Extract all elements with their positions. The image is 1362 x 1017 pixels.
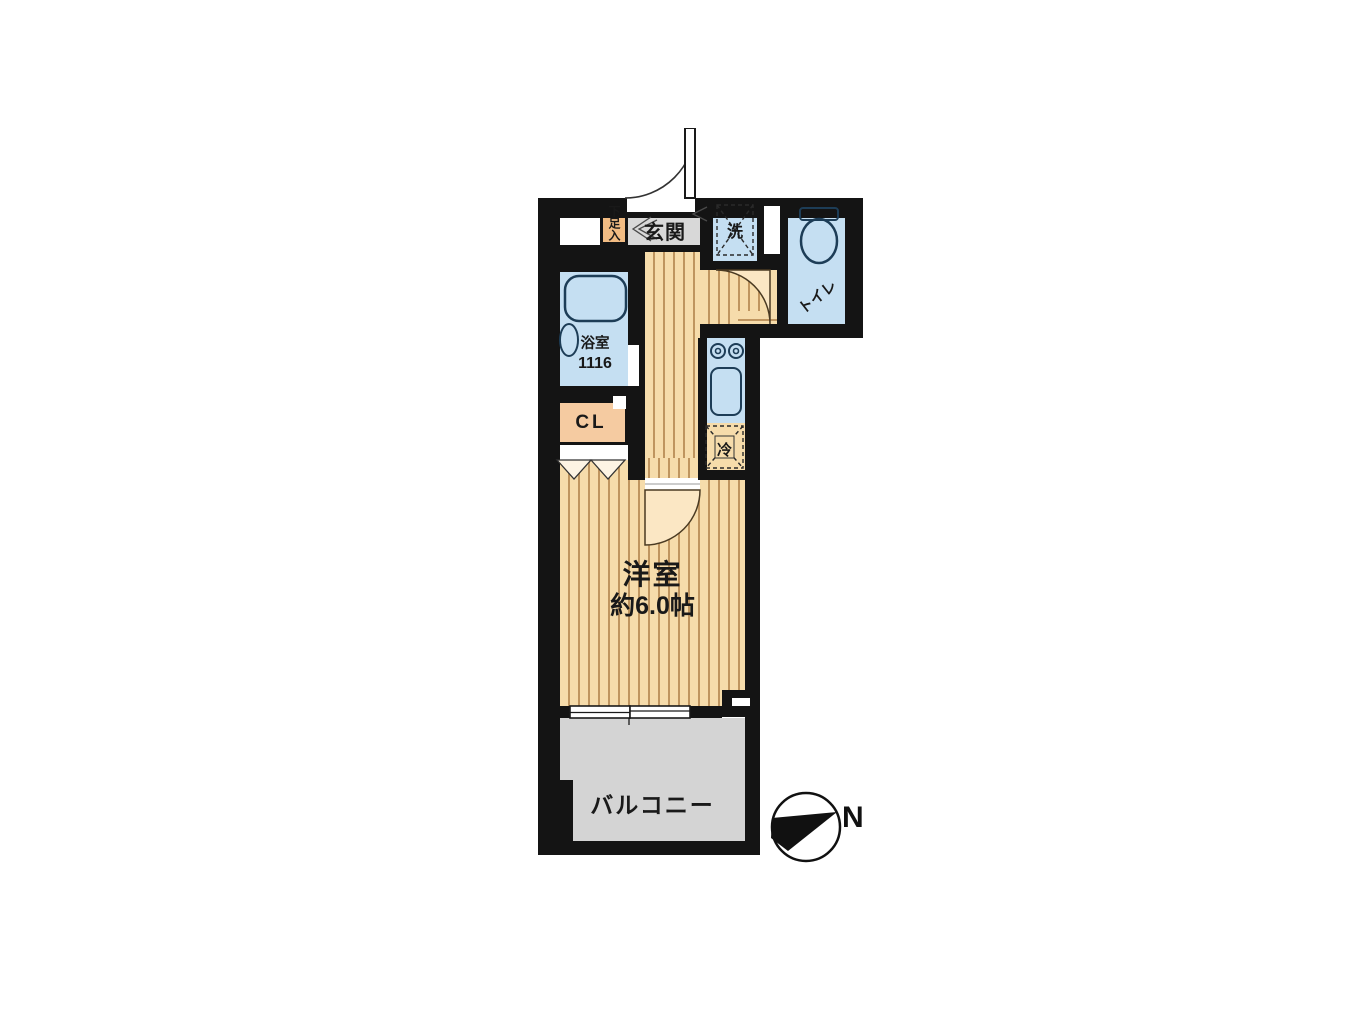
wall-kitchen-left [698, 338, 707, 480]
window-sill-bar [560, 706, 722, 718]
wall-vestibule-right [777, 270, 788, 328]
balcony [560, 718, 745, 841]
wall-right-upper [845, 198, 863, 338]
wall-under-washer [700, 261, 788, 270]
toilet-vestibule-floor-patch [738, 311, 777, 324]
kitchen-counter [707, 338, 745, 423]
washer-label: 洗 [713, 218, 757, 242]
wall-bottom [573, 841, 760, 855]
bathroom-door-opening [628, 345, 639, 387]
balcony-label: バルコニー [560, 786, 745, 820]
step-notch [732, 698, 750, 706]
bathroom-label: 浴室 1116 [564, 335, 626, 373]
main-room-name: 洋室 [560, 558, 745, 591]
fridge-label: 冷 [714, 439, 735, 460]
compass-north-label: N [842, 801, 864, 834]
toilet-door-opening [764, 206, 780, 254]
shoe-storage-label: 下足入 [600, 201, 628, 245]
bathroom-size: 1116 [564, 354, 626, 373]
bathroom-name: 浴室 [564, 335, 626, 354]
wall-under-fridge [698, 470, 760, 480]
entrance-door-arc [625, 128, 695, 198]
entrance-door-leaf-icon [685, 128, 695, 198]
screenshot-root: { "plan": { "rooms": { "entrance_label":… [0, 0, 1362, 1017]
main-room-label: 洋室 約6.0帖 [560, 558, 745, 621]
room-door-threshold [645, 478, 700, 490]
closet-front-strip [554, 445, 628, 460]
main-room-size: 約6.0帖 [560, 591, 745, 621]
compass-icon: N [755, 770, 895, 870]
wall-left [538, 198, 560, 855]
closet-label: CL [554, 400, 628, 445]
hallway-floor [645, 252, 700, 478]
floorplan: 玄関 下足入 洗 トイレ 浴室 1116 CL 冷 洋室 約6.0帖 バルコニー [538, 128, 863, 855]
entrance-label: 玄関 [628, 216, 702, 245]
entrance-door-gap [627, 198, 695, 212]
